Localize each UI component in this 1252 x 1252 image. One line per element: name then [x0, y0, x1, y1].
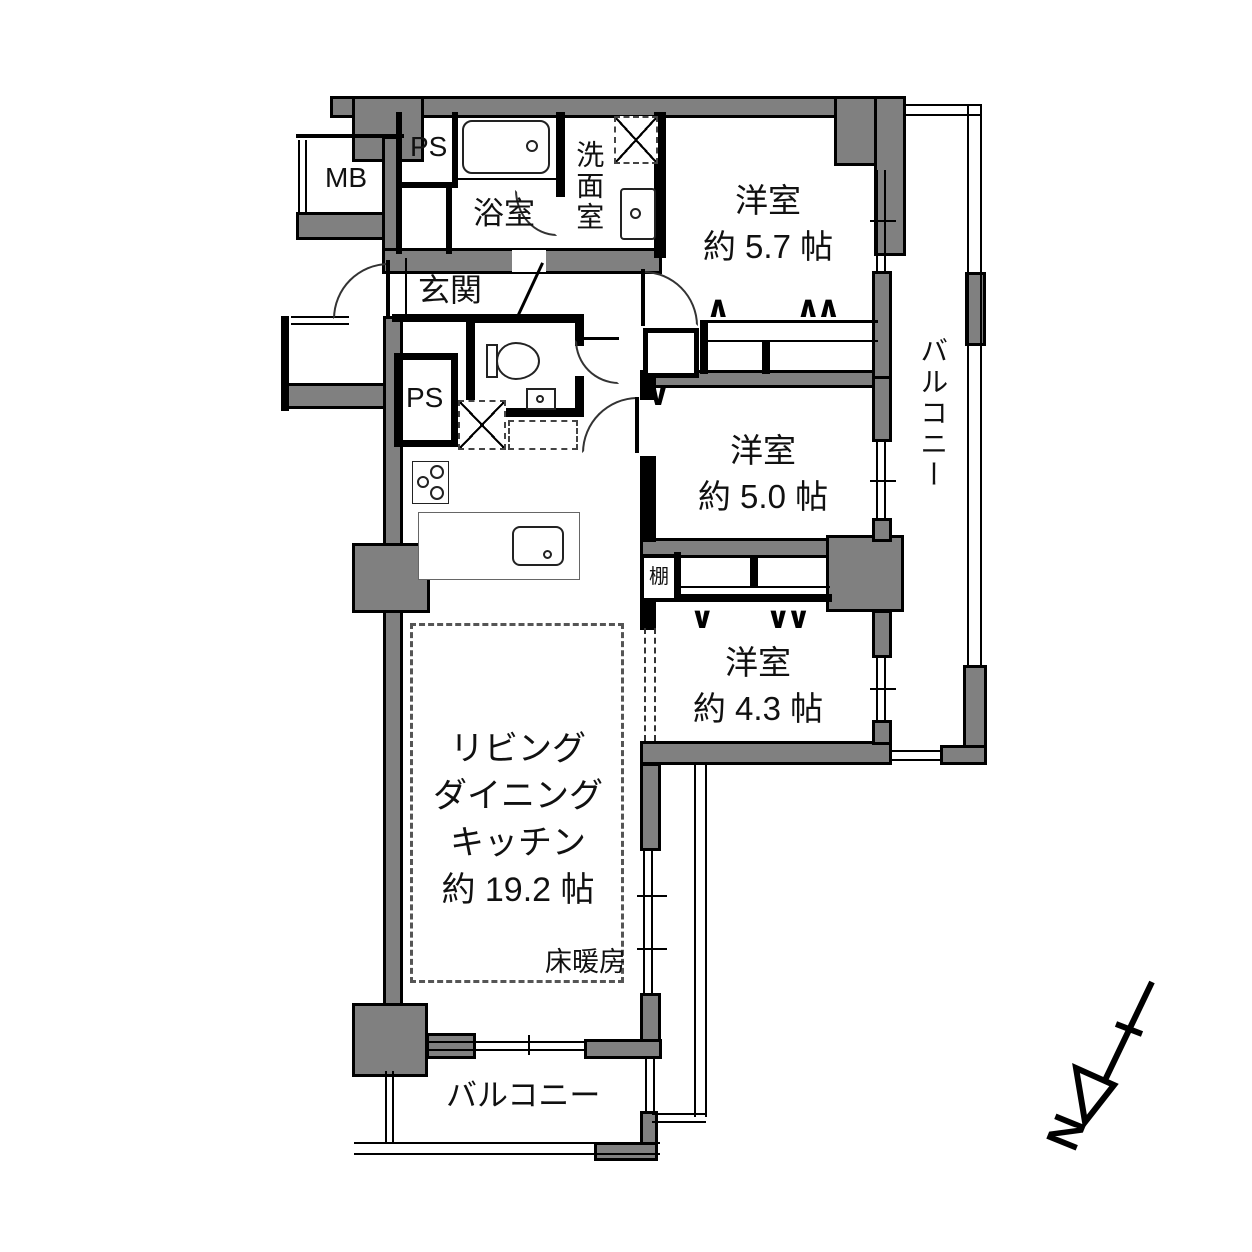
hanger-pipe-icon: ∨: [690, 604, 710, 634]
window: [884, 658, 886, 722]
cupboard-space: [508, 420, 578, 450]
entrance-step-line: [405, 258, 407, 316]
ldk-door-leaf: [635, 397, 639, 453]
bedroom3-label: 洋室 約 4.3 帖: [650, 640, 866, 732]
wall: [296, 134, 404, 138]
balcony-railing: [906, 114, 982, 116]
stove-burner: [417, 476, 429, 488]
balcony-railing: [652, 1113, 706, 1115]
entrance-door-arc: [333, 263, 389, 319]
wall: [394, 353, 401, 447]
hanger-pipe-icon: ∧∧: [796, 293, 837, 323]
washing-machine-pan: [614, 116, 658, 164]
ldk-size: 約 19.2 帖: [408, 867, 628, 914]
kitchen-sink: [512, 526, 564, 566]
closet: [643, 328, 699, 378]
balcony-railing: [354, 1153, 660, 1155]
window-tick: [870, 688, 896, 690]
balcony-railing: [967, 104, 969, 668]
window: [305, 140, 307, 214]
bathtub-drain: [526, 140, 538, 152]
wall: [466, 314, 584, 323]
bath-line: [458, 178, 556, 180]
wall: [872, 518, 892, 542]
room-size: 約 5.0 帖: [655, 474, 871, 520]
wall: [394, 353, 458, 360]
wall: [584, 1039, 662, 1059]
washroom-label: 洗面室: [572, 140, 604, 233]
window-tick: [528, 1035, 530, 1055]
closet-wall: [700, 320, 708, 374]
stove-burner: [430, 486, 444, 500]
bath-label: 浴室: [473, 196, 535, 232]
balcony-railing: [392, 1071, 394, 1142]
window: [298, 140, 300, 214]
stove-burner: [430, 465, 444, 479]
north-compass-icon: N: [1030, 955, 1252, 1185]
room-name: 洋室: [660, 178, 876, 224]
wall: [451, 353, 458, 447]
wall: [640, 741, 892, 765]
room-size: 約 5.7 帖: [660, 224, 876, 270]
balcony-right-label: バルコニー: [916, 336, 948, 491]
closet-divider: [750, 556, 758, 586]
balcony-bottom-label: バルコニー: [446, 1078, 600, 1114]
wall: [872, 376, 892, 442]
closet-line: [700, 320, 878, 323]
wall: [426, 1033, 476, 1059]
wall: [394, 440, 458, 447]
wall: [872, 271, 892, 379]
window-tick: [637, 895, 667, 897]
floor-heating-label: 床暖房: [545, 947, 626, 978]
mb-label: MB: [325, 162, 367, 194]
wall: [281, 383, 397, 409]
window: [876, 658, 878, 722]
ldk-line: キッチン: [408, 820, 628, 867]
kitchen-sink-drain: [543, 550, 552, 559]
balcony-railing: [653, 1059, 655, 1113]
room-name: 洋室: [650, 640, 866, 686]
wall: [396, 188, 402, 254]
bedroom1-door-leaf: [641, 269, 645, 326]
wall: [383, 610, 403, 1010]
floor-plan: ∧ ∧∧ ∨ ∨ ∨∨ MB PS 浴室 洗面室 玄関 PS 棚 洋室 約 5.…: [0, 0, 1252, 1252]
balcony-railing: [645, 1059, 647, 1113]
railing-wall: [940, 745, 987, 765]
hanger-pipe-icon: ∧: [706, 293, 726, 323]
balcony-railing: [694, 763, 696, 1117]
window: [643, 849, 645, 995]
shelf-label: 棚: [649, 566, 669, 589]
toilet-basin-drain: [536, 395, 544, 403]
window-tick: [870, 480, 896, 482]
toilet-door-leaf: [575, 337, 619, 340]
room-size: 約 4.3 帖: [650, 686, 866, 732]
wall: [872, 610, 892, 658]
bedroom1-door-arc: [643, 271, 698, 326]
ldk-label: リビング ダイニング キッチン 約 19.2 帖: [408, 726, 628, 914]
pillar: [826, 535, 904, 612]
ldk-door-arc: [582, 397, 638, 453]
bedroom2-label: 洋室 約 5.0 帖: [655, 428, 871, 520]
washbasin-drain: [630, 208, 641, 219]
wall: [446, 188, 452, 254]
ldk-line: ダイニング: [408, 773, 628, 820]
balcony-railing: [892, 759, 940, 761]
balcony-railing: [980, 104, 982, 668]
refrigerator-space: [458, 400, 506, 450]
wall: [640, 456, 656, 542]
balcony-railing: [705, 763, 707, 1117]
wall: [640, 598, 656, 630]
closet-line: [706, 340, 878, 342]
window: [291, 323, 349, 325]
wall: [452, 112, 458, 188]
entrance-door-leaf: [386, 260, 390, 318]
closet-divider: [762, 342, 770, 374]
window-tick: [637, 948, 667, 950]
entrance-label: 玄関: [418, 272, 482, 309]
closet-line: [680, 586, 830, 588]
balcony-railing: [652, 1121, 706, 1123]
wall: [281, 316, 289, 411]
wall: [640, 763, 661, 851]
window: [428, 1041, 586, 1043]
balcony-railing: [385, 1071, 387, 1142]
balcony-railing: [892, 750, 940, 752]
window: [651, 849, 653, 995]
balcony-railing: [354, 1142, 660, 1144]
toilet-bowl: [496, 342, 540, 380]
hanger-pipe-icon: ∨∨: [766, 604, 807, 634]
railing-wall: [594, 1142, 658, 1161]
pillar: [352, 1003, 428, 1077]
wall: [396, 112, 402, 188]
ps2-label: PS: [406, 382, 443, 414]
wall: [575, 376, 584, 417]
ldk-line: リビング: [408, 726, 628, 773]
ps-label: PS: [410, 131, 447, 163]
room-name: 洋室: [655, 428, 871, 474]
bedroom1-label: 洋室 約 5.7 帖: [660, 178, 876, 270]
balcony-railing: [906, 104, 982, 106]
window: [428, 1049, 586, 1051]
wall: [872, 720, 892, 745]
wall: [392, 314, 470, 322]
sliding-partition: [644, 628, 646, 741]
hanger-pipe-icon: ∨: [646, 381, 666, 411]
wall: [556, 112, 565, 197]
wall: [874, 96, 906, 256]
railing-wall: [963, 665, 987, 751]
